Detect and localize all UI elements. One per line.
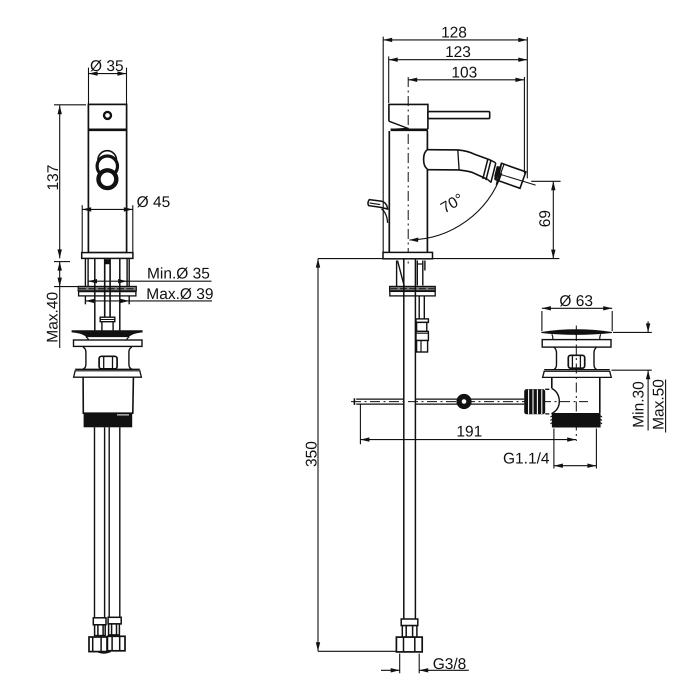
svg-text:G1.1/4: G1.1/4	[503, 450, 550, 467]
svg-text:Min.30: Min.30	[631, 381, 648, 428]
svg-text:191: 191	[456, 424, 482, 441]
svg-text:Max.40: Max.40	[45, 292, 62, 343]
svg-text:103: 103	[451, 64, 477, 81]
svg-text:Ø 63: Ø 63	[559, 293, 593, 310]
svg-text:350: 350	[304, 441, 321, 467]
svg-text:Min.Ø 35: Min.Ø 35	[147, 266, 210, 283]
svg-text:Max.50: Max.50	[650, 379, 667, 430]
svg-text:128: 128	[441, 24, 467, 41]
svg-text:G3/8: G3/8	[433, 656, 467, 673]
svg-text:69: 69	[537, 210, 554, 227]
svg-text:Max.Ø 39: Max.Ø 39	[146, 286, 213, 303]
svg-text:137: 137	[45, 165, 62, 191]
svg-text:123: 123	[445, 44, 471, 61]
svg-text:Ø 45: Ø 45	[137, 194, 171, 211]
